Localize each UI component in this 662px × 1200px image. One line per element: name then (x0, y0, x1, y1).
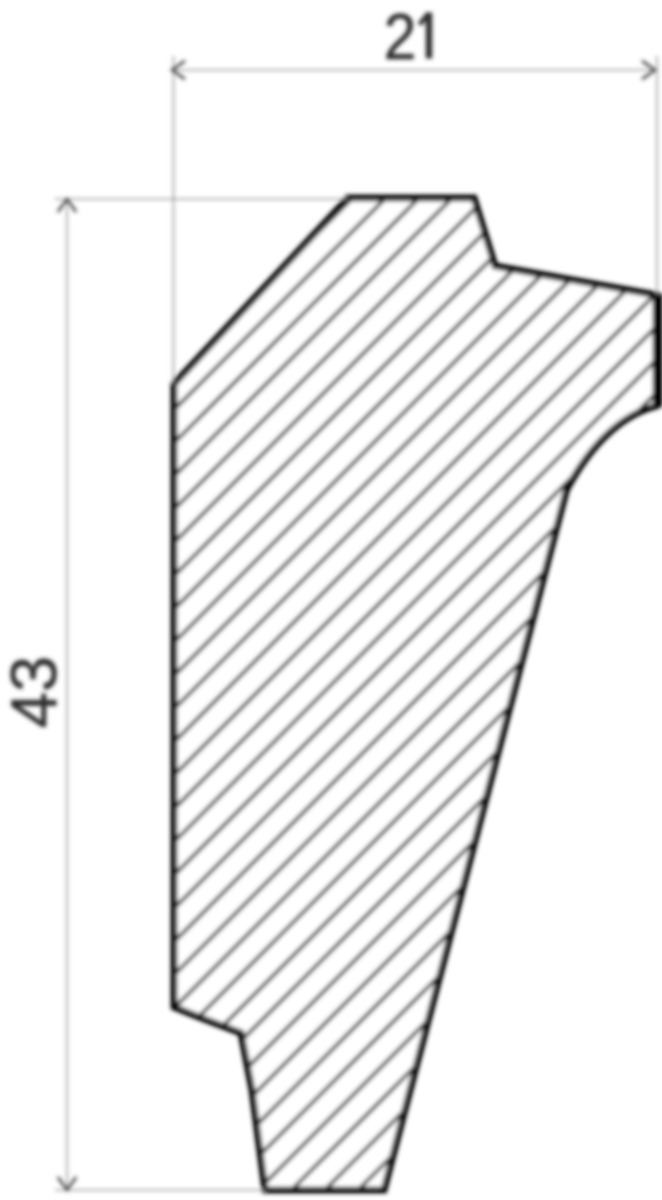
svg-text:2: 2 (384, 1, 417, 74)
svg-text:43: 43 (0, 656, 70, 728)
